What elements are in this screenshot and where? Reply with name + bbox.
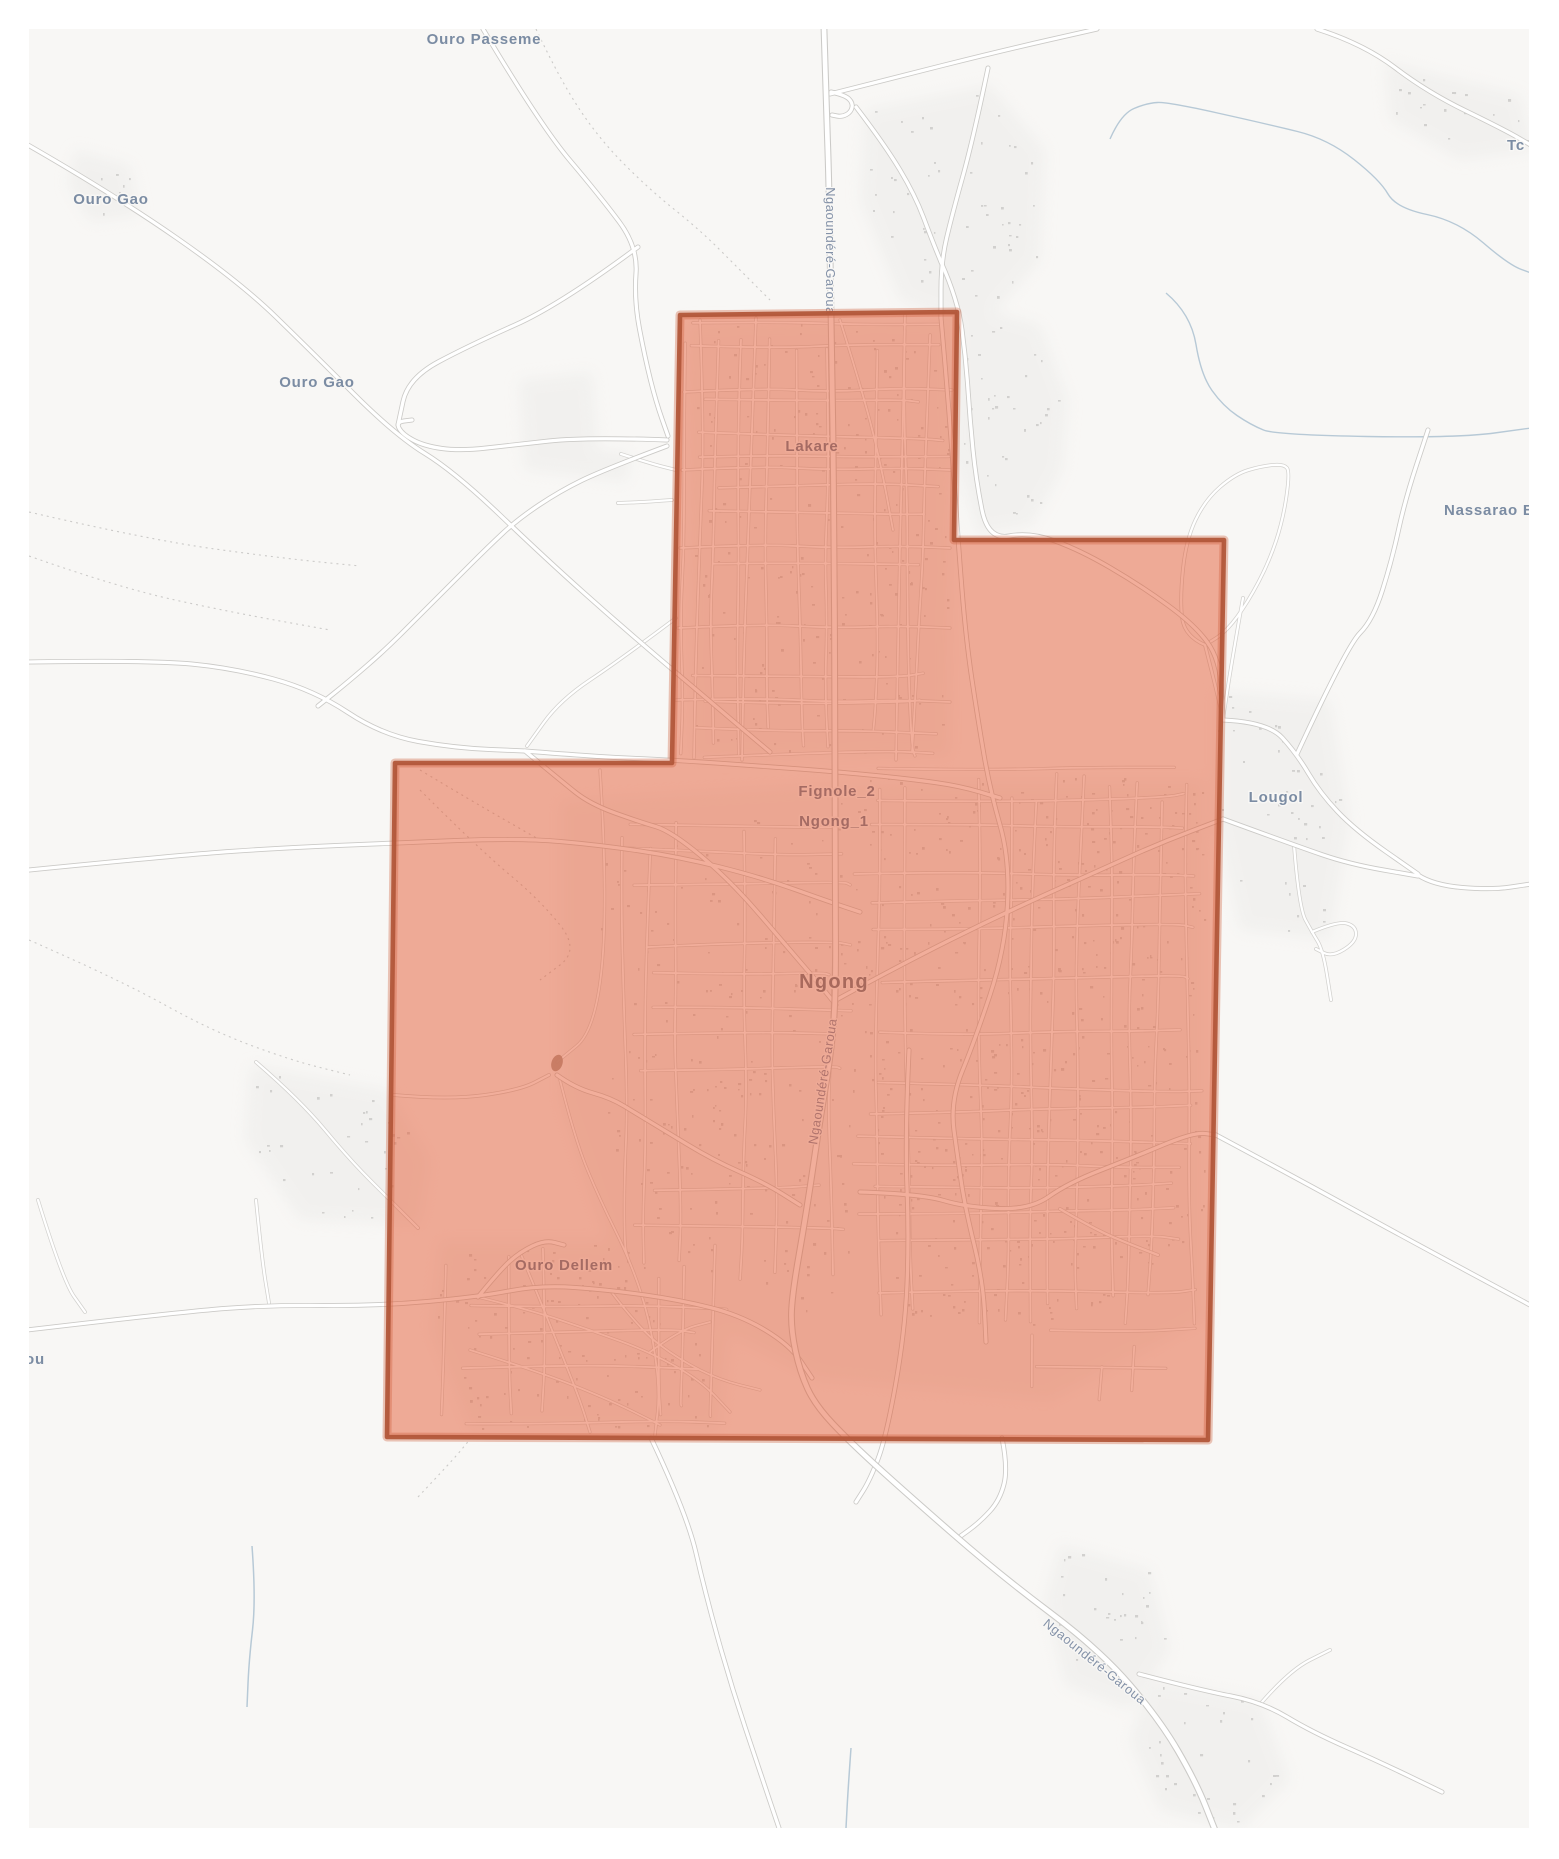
svg-text:Ouro Gao: Ouro Gao [73, 191, 149, 208]
svg-text:Ngaoundéré-Garoua: Ngaoundéré-Garoua [823, 187, 838, 315]
svg-text:Lougol: Lougol [1249, 789, 1304, 806]
svg-text:Ouro Passeme: Ouro Passeme [427, 31, 542, 48]
svg-text:Tc: Tc [1507, 137, 1525, 154]
svg-text:Ouro Gao: Ouro Gao [279, 374, 355, 391]
svg-text:Nassarao B: Nassarao B [1444, 502, 1535, 519]
